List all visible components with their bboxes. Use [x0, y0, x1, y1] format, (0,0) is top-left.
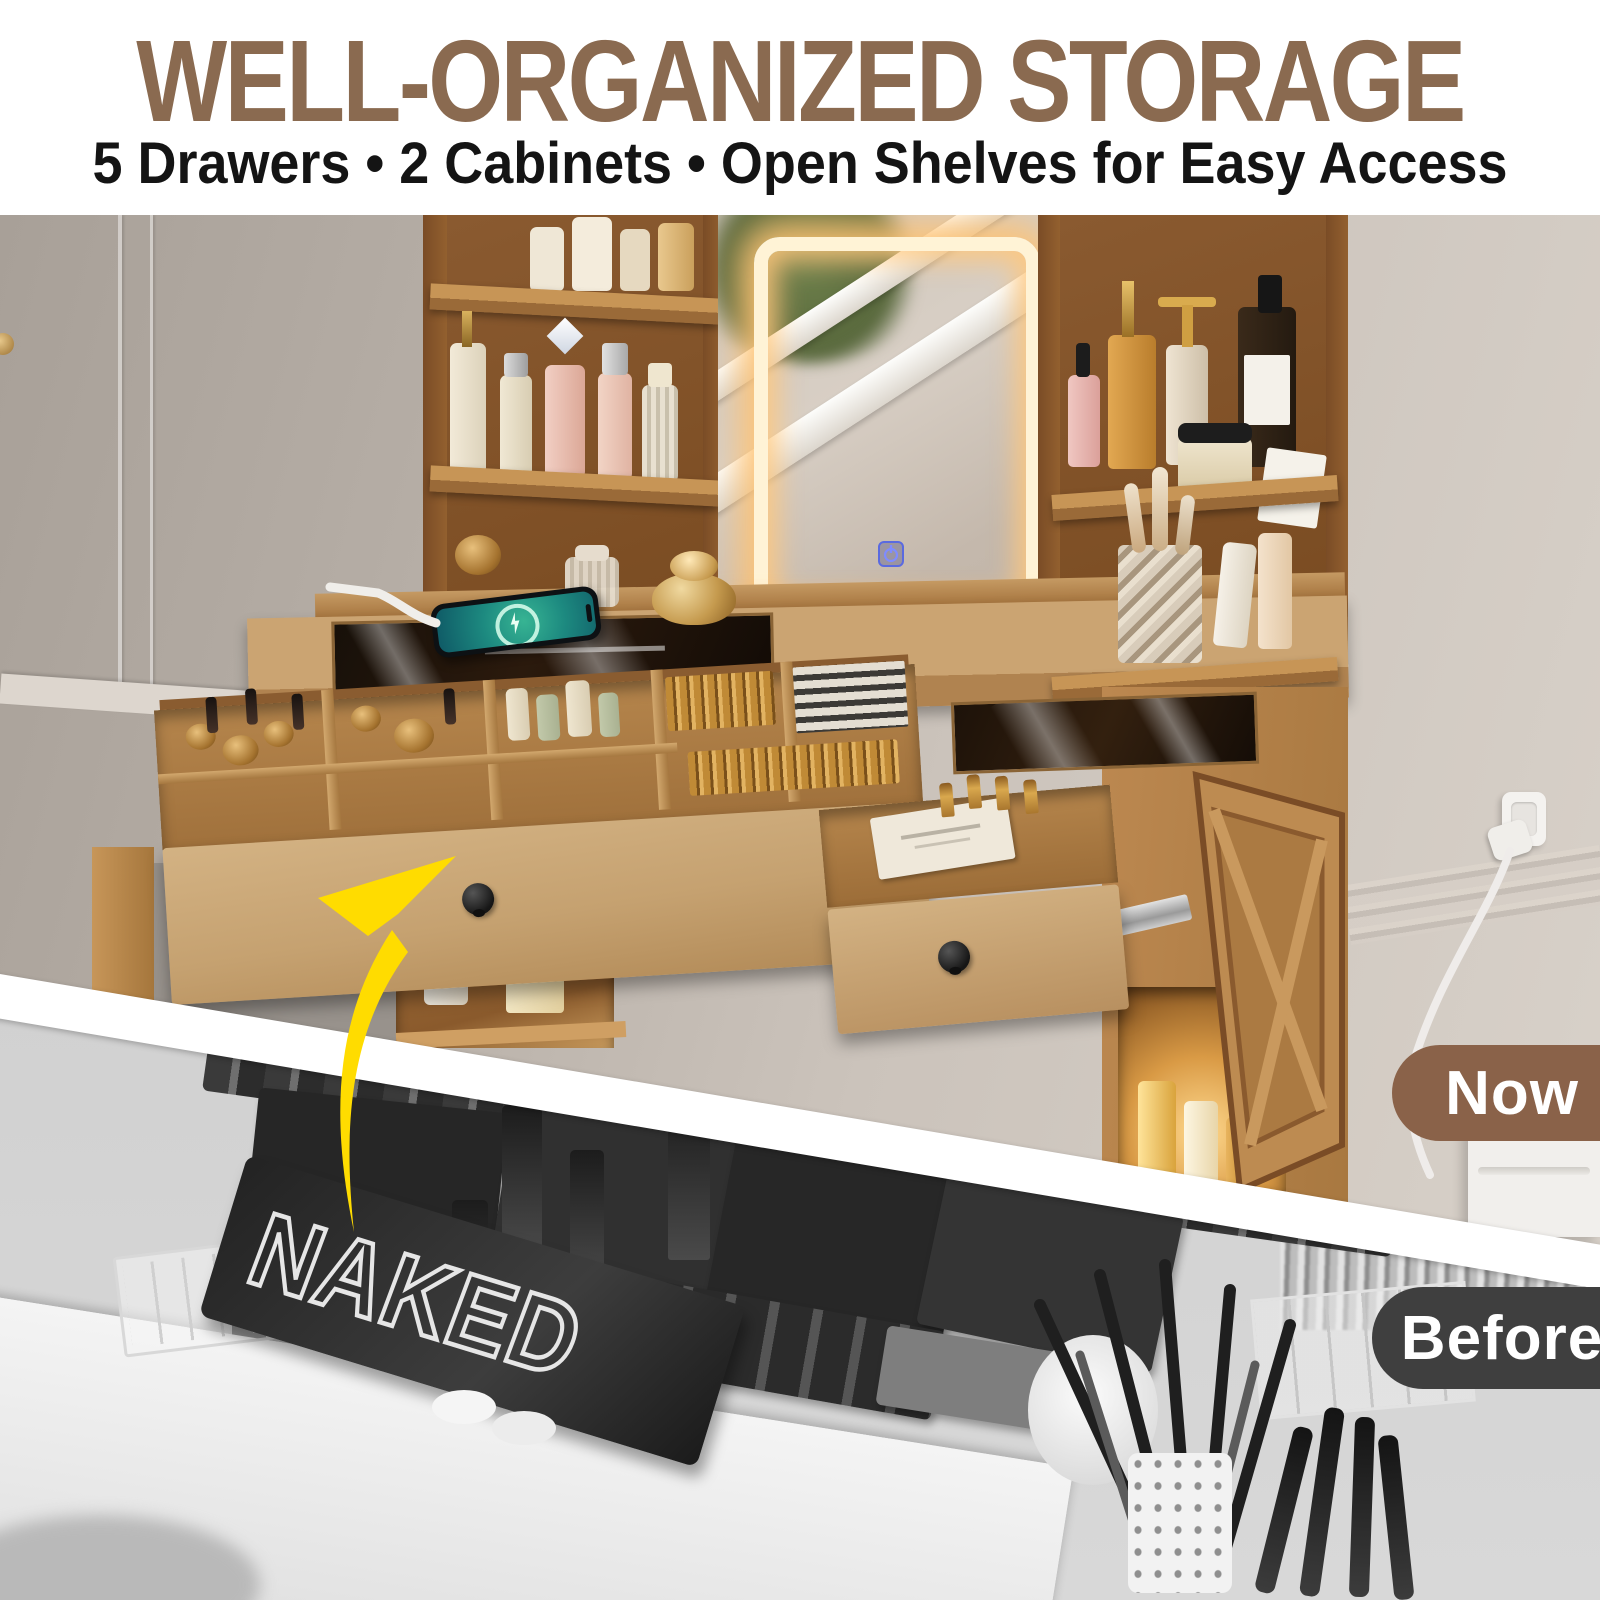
now-badge: Now: [1392, 1045, 1600, 1141]
bottle: [620, 229, 650, 291]
glow-bottle: [1184, 1101, 1218, 1187]
wall-molding: [118, 215, 122, 685]
mini-bottle: [598, 692, 621, 737]
lipstick-rows: [665, 671, 776, 731]
bottle-label: [1244, 355, 1290, 425]
ribbed-bottle: [642, 385, 678, 481]
dropper-bottle: [1068, 375, 1100, 467]
crystal-brush-cup: [1118, 545, 1202, 663]
open-drawer-large[interactable]: [153, 654, 932, 1005]
gold-trinket-jar: [652, 551, 736, 625]
bottle: [658, 223, 694, 291]
bw-lipstick: [502, 1105, 542, 1255]
gold-jar-small: [455, 535, 501, 575]
bw-tape-roll: [492, 1411, 556, 1445]
bottle: [572, 217, 612, 291]
pump-stem: [1122, 281, 1134, 337]
pump-stem: [462, 311, 472, 347]
bottle-cap: [1258, 275, 1282, 313]
now-badge-label: Now: [1445, 1058, 1579, 1129]
glow-bottle: [1226, 1117, 1254, 1187]
before-badge-label: Before: [1401, 1303, 1600, 1374]
bw-dotted-brush-cup: [1128, 1453, 1232, 1593]
bw-brush-handles: [1268, 1395, 1428, 1600]
mini-bottle: [505, 688, 530, 741]
mini-bottle: [565, 680, 592, 737]
open-drawer-small[interactable]: [819, 785, 1129, 1035]
bottle: [530, 227, 564, 291]
white-side-cabinet: [1468, 1127, 1600, 1237]
bottle-cap: [504, 353, 528, 377]
bottle-cap: [648, 363, 672, 387]
pump-stem: [1182, 305, 1193, 347]
bottle-pump: [450, 343, 486, 473]
lipstick-gold: [1023, 779, 1039, 814]
lipstick: [291, 693, 304, 730]
makeup-brush: [1152, 467, 1168, 551]
jar-lid: [1178, 423, 1252, 443]
page-subtitle: 5 Drawers • 2 Cabinets • Open Shelves fo…: [56, 130, 1544, 197]
lipstick-gold: [995, 776, 1011, 811]
lipstick-gold: [966, 774, 982, 809]
touch-power-icon[interactable]: [878, 541, 904, 567]
before-badge: Before: [1372, 1287, 1600, 1389]
amber-pump-bottle: [1108, 335, 1156, 469]
mini-bottle: [536, 694, 561, 741]
bottle-cap: [602, 343, 628, 375]
wainscot-trim: [1342, 845, 1600, 945]
page-title: WELL-ORGANIZED STORAGE: [112, 14, 1488, 148]
lipstick: [443, 688, 456, 725]
drawer-front: [827, 884, 1129, 1034]
glass-top-right: [951, 692, 1259, 775]
lipstick: [205, 697, 218, 734]
perfume-bottle: [545, 365, 585, 477]
lipstick: [245, 688, 258, 725]
wall-hook: [0, 333, 14, 355]
lipstick-gold: [939, 782, 955, 817]
dropper-cap: [1076, 343, 1090, 377]
spray-bottle: [1258, 533, 1292, 649]
palette-stack: [793, 661, 909, 734]
product-infographic: WELL-ORGANIZED STORAGE 5 Drawers • 2 Cab…: [0, 0, 1600, 1600]
bottle: [500, 375, 532, 475]
wall-molding: [150, 215, 153, 685]
bw-tape-roll: [432, 1390, 496, 1424]
bottle: [598, 373, 632, 479]
